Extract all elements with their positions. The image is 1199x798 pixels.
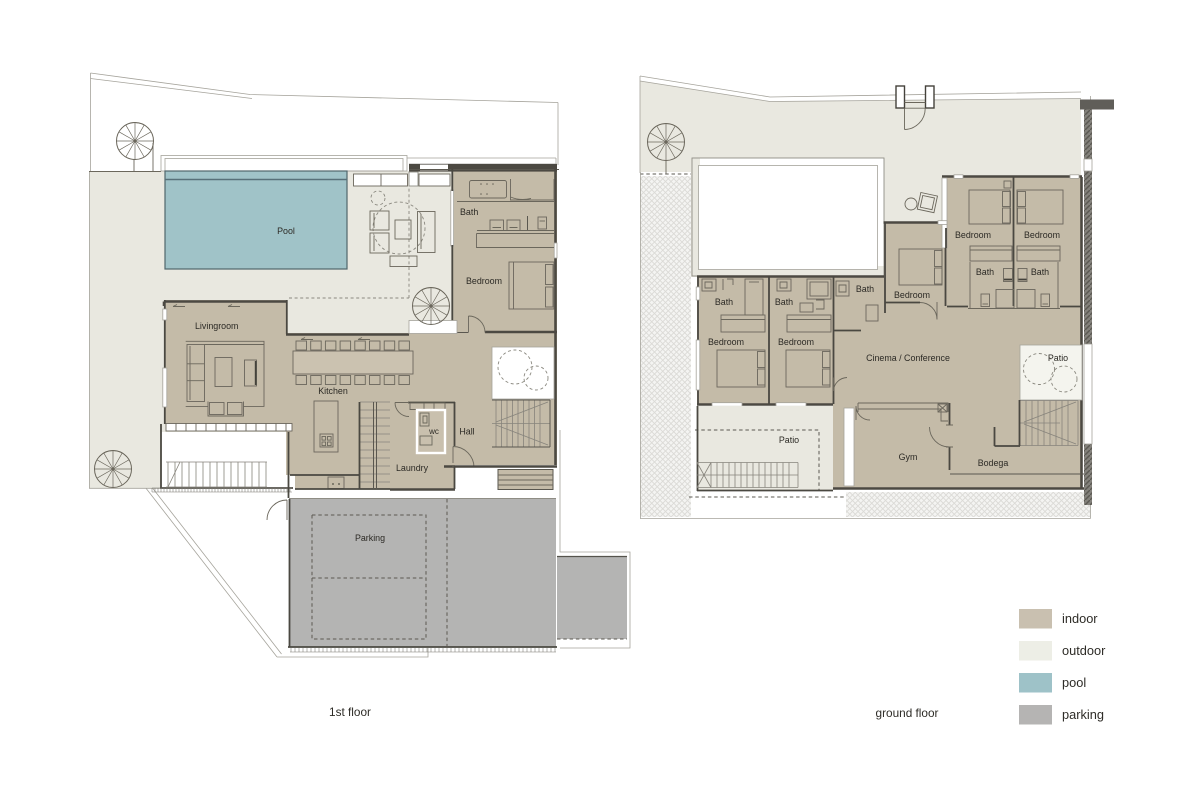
svg-text:Bedroom: Bedroom <box>1024 230 1060 240</box>
svg-text:Laundry: Laundry <box>396 463 429 473</box>
svg-text:Bath: Bath <box>976 267 994 277</box>
svg-text:Patio: Patio <box>1048 353 1068 363</box>
svg-text:Patio: Patio <box>779 435 799 445</box>
svg-text:Bedroom: Bedroom <box>708 337 744 347</box>
svg-text:parking: parking <box>1062 707 1104 722</box>
svg-text:indoor: indoor <box>1062 611 1098 626</box>
svg-text:Bedroom: Bedroom <box>955 230 991 240</box>
svg-text:Kitchen: Kitchen <box>318 386 348 396</box>
svg-text:Bath: Bath <box>856 284 874 294</box>
svg-text:Bodega: Bodega <box>978 458 1009 468</box>
svg-text:Pool: Pool <box>277 226 295 236</box>
svg-text:Bedroom: Bedroom <box>778 337 814 347</box>
svg-text:pool: pool <box>1062 675 1086 690</box>
svg-text:Bedroom: Bedroom <box>466 276 502 286</box>
svg-text:outdoor: outdoor <box>1062 643 1106 658</box>
svg-text:Bath: Bath <box>460 207 478 217</box>
svg-text:Bath: Bath <box>715 297 733 307</box>
svg-text:ground floor: ground floor <box>876 706 939 720</box>
svg-text:1st floor: 1st floor <box>329 705 371 719</box>
svg-text:Livingroom: Livingroom <box>195 321 238 331</box>
svg-text:wc: wc <box>428 427 439 436</box>
svg-text:Cinema / Conference: Cinema / Conference <box>866 353 950 363</box>
svg-text:Hall: Hall <box>459 427 474 437</box>
svg-text:Bath: Bath <box>1031 267 1049 277</box>
svg-text:Bath: Bath <box>775 297 793 307</box>
svg-text:Bedroom: Bedroom <box>894 290 930 300</box>
svg-text:Gym: Gym <box>899 452 918 462</box>
svg-text:Parking: Parking <box>355 533 385 543</box>
